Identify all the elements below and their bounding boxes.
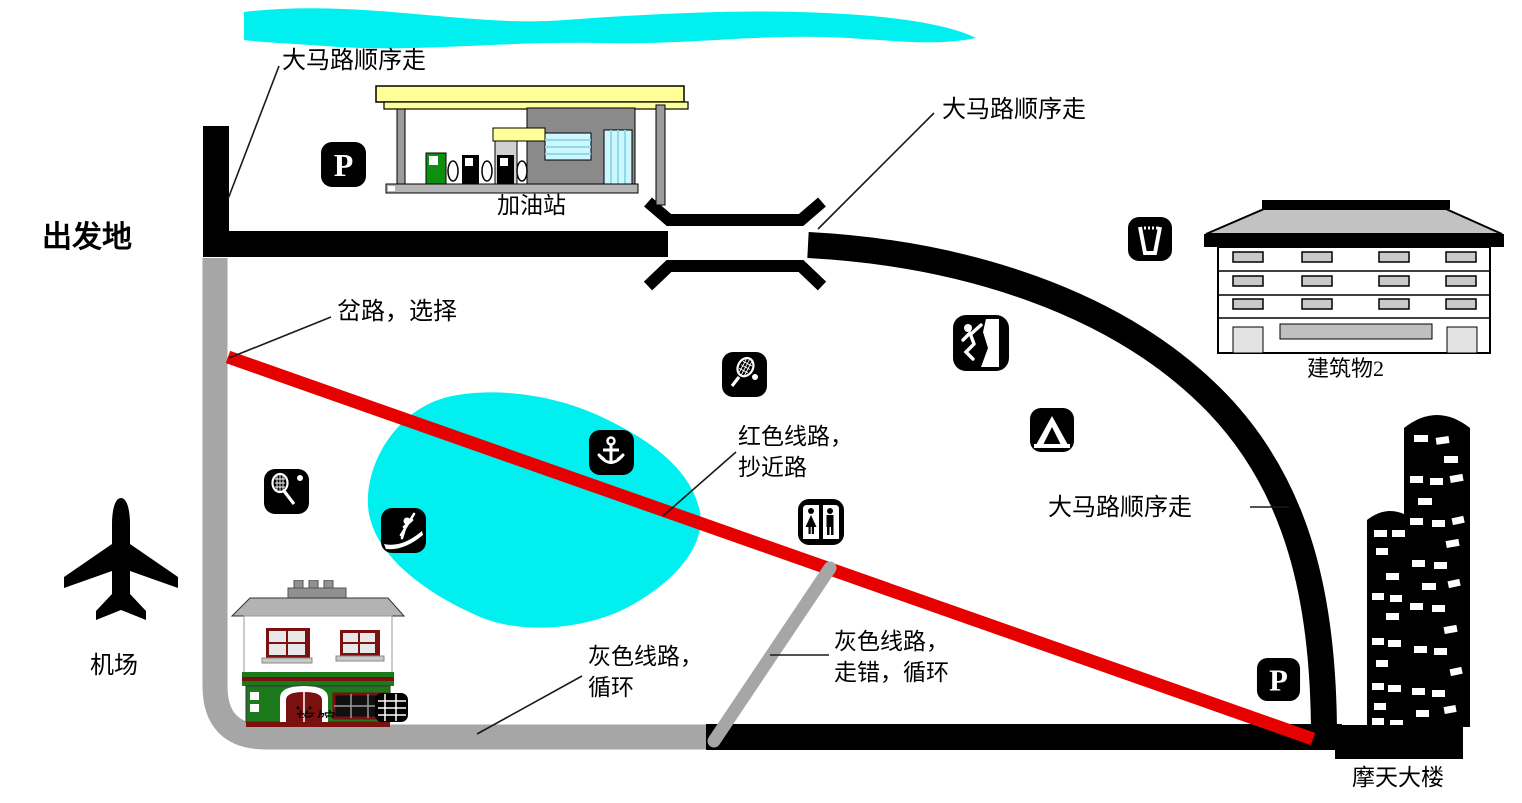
kayak-icon	[380, 507, 427, 554]
skyscraper	[1326, 390, 1522, 795]
label-skyscraper: 摩天大楼	[1352, 762, 1444, 793]
parking-letter: P	[1269, 664, 1288, 698]
leader-top-left	[228, 66, 279, 199]
parking-icon: P	[1256, 657, 1301, 702]
roof	[1206, 209, 1502, 234]
roof-ridge	[1262, 200, 1450, 209]
upper-window-right	[336, 630, 384, 661]
label-gray-wrong-line1: 灰色线路，	[834, 629, 949, 654]
door-left	[1233, 327, 1263, 353]
label-gray-loop: 灰色线路， 循环	[588, 641, 703, 703]
cup-icon	[1127, 216, 1173, 262]
label-gray-loop-line1: 灰色线路，	[588, 644, 703, 669]
platform-notch	[388, 186, 395, 191]
label-start-point: 出发地	[42, 218, 132, 259]
label-follow-main-road-top-right: 大马路顺序走	[942, 94, 1086, 126]
station-sign	[493, 128, 545, 141]
leader-top-right	[818, 113, 934, 229]
tennis-racket-ball-icon	[263, 468, 310, 515]
label-fork-choose: 岔路，选择	[337, 296, 457, 328]
fuel-pump-green	[426, 153, 458, 184]
canopy	[376, 86, 684, 102]
facade-band	[242, 672, 394, 686]
label-airport: 机场	[90, 650, 138, 682]
fuel-pump-black-2	[497, 155, 527, 184]
anchor-icon	[588, 429, 635, 476]
barrel	[375, 693, 408, 722]
label-gray-loop-line2: 循环	[588, 675, 634, 700]
building-2	[1198, 196, 1510, 364]
label-follow-main-road-right: 大马路顺序走	[1048, 492, 1192, 524]
river	[244, 8, 976, 48]
leader-fork	[229, 317, 331, 358]
fuel-pump-black-1	[462, 155, 492, 184]
base-strip	[246, 722, 390, 727]
parking-icon: P	[320, 141, 367, 188]
label-inn-partially-hidden: 旅馆	[296, 708, 338, 718]
airplane-icon	[56, 492, 186, 642]
canopy-pole-right	[656, 105, 665, 205]
door-right	[1447, 327, 1477, 353]
label-red-route-line2: 抄近路	[738, 455, 807, 480]
roof-fascia	[1204, 234, 1504, 247]
station-door	[604, 130, 632, 188]
roof	[232, 598, 404, 616]
tower-base	[1335, 725, 1463, 759]
sign-band	[1280, 324, 1432, 339]
station-window	[545, 133, 591, 160]
label-building2: 建筑物2	[1307, 354, 1384, 384]
tennis-racket-ball-icon	[721, 351, 768, 398]
label-red-route-line1: 红色线路，	[738, 424, 853, 449]
restroom-icon	[797, 498, 845, 546]
label-red-route: 红色线路， 抄近路	[738, 421, 853, 483]
label-gray-wrong-line2: 走错，循环	[834, 660, 949, 685]
route-map: P P	[0, 0, 1522, 803]
side-slit-1	[250, 692, 259, 700]
label-follow-main-road-top-left: 大马路顺序走	[282, 45, 426, 77]
label-gray-wrong: 灰色线路， 走错，循环	[834, 626, 949, 688]
climbing-icon	[952, 314, 1010, 372]
camping-icon	[1029, 407, 1075, 453]
parking-letter: P	[334, 147, 354, 183]
canopy-pole-left	[397, 109, 405, 185]
side-slit-2	[250, 704, 259, 712]
upper-window-left	[262, 628, 312, 663]
chimney	[288, 580, 346, 600]
label-gas-station: 加油站	[497, 190, 566, 221]
